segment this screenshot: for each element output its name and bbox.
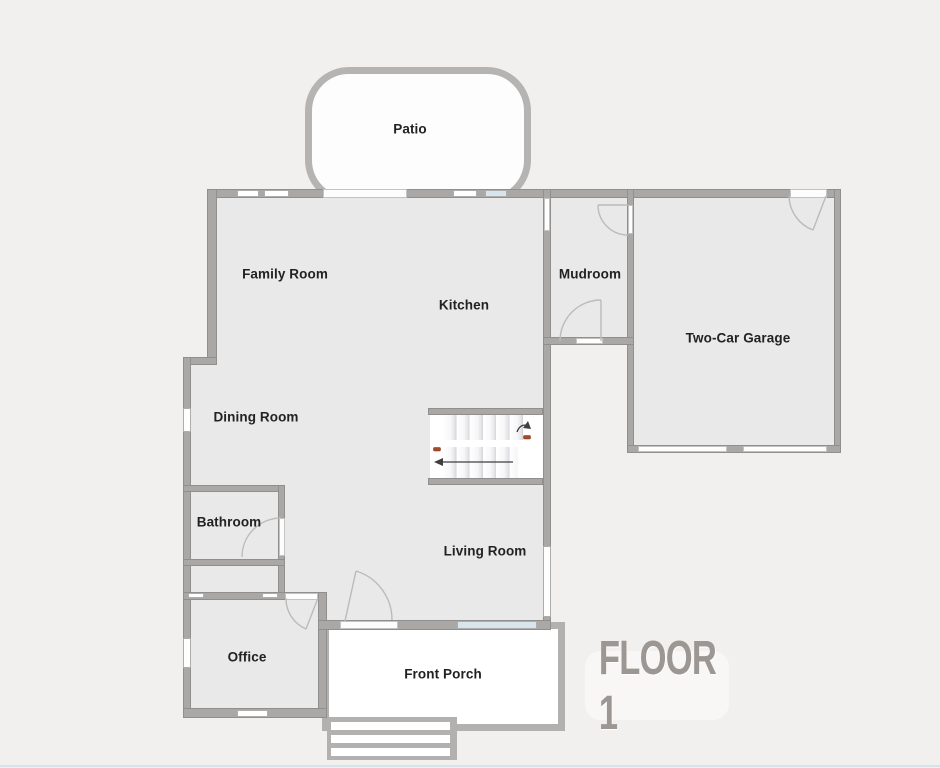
room-label-kitchen: Kitchen (439, 298, 489, 313)
stair-marker-lower (434, 448, 441, 452)
mudroom-garage-door-arc (598, 205, 628, 235)
room-label-living-room: Living Room (444, 544, 527, 559)
garage-service-door-arc (789, 196, 813, 230)
page-bottom-divider (0, 765, 940, 767)
front-door-leaf (345, 571, 356, 621)
office-door-arc (286, 598, 306, 629)
floor-badge: FLOOR 1 (585, 651, 729, 720)
door-swings-and-arrows (0, 0, 940, 768)
room-label-mudroom: Mudroom (559, 267, 621, 282)
front-door-arc (356, 571, 392, 620)
room-label-dining-room: Dining Room (213, 410, 298, 425)
floor-badge-label: FLOOR 1 (598, 631, 715, 741)
mudroom-exterior-door-arc (560, 300, 601, 341)
office-door-leaf (306, 598, 318, 629)
stair-marker-upper (524, 436, 531, 440)
floor-plan-canvas: Patio Family Room Kitchen Mudroom Two-Ca… (0, 0, 940, 768)
room-label-family-room: Family Room (242, 267, 328, 282)
room-label-front-porch: Front Porch (404, 667, 482, 682)
room-label-bathroom: Bathroom (197, 515, 262, 530)
room-label-patio: Patio (393, 122, 427, 137)
stairs-down-arrowhead (434, 458, 443, 466)
garage-service-door-leaf (813, 196, 826, 230)
room-label-office: Office (228, 650, 267, 665)
room-label-garage: Two-Car Garage (686, 331, 791, 346)
